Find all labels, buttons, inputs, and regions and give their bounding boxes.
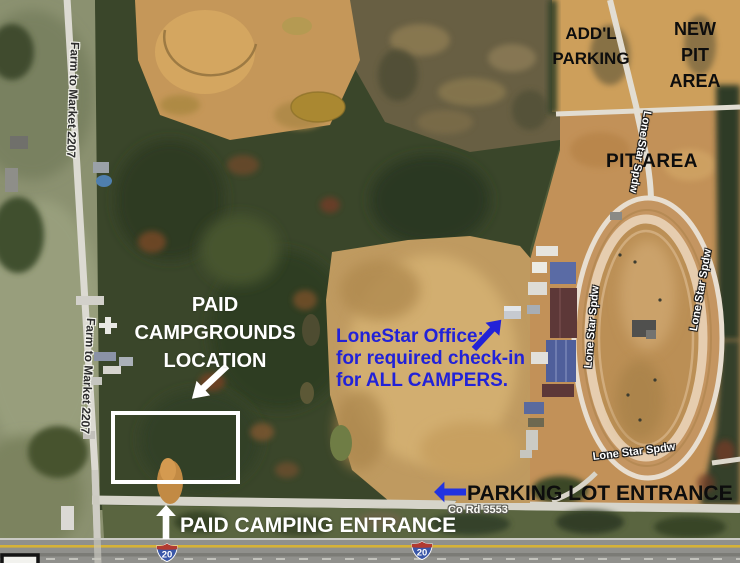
satellite-map: 20 20 ADD'L PARKING NEW PIT AREA PIT ARE… <box>0 0 740 563</box>
partial-shield-box <box>2 555 38 563</box>
paid-campgrounds-label: PAID CAMPGROUNDS LOCATION <box>134 291 295 375</box>
new-pit-area-label: NEW PIT AREA <box>669 16 720 94</box>
parking-lot-entrance-label: PARKING LOT ENTRANCE <box>467 481 733 507</box>
addl-parking-label: ADD'L PARKING <box>552 21 629 71</box>
shield-number: 20 <box>417 548 428 559</box>
lonestar-office-note: LoneStar Office: for required check-in f… <box>336 326 525 392</box>
campgrounds-boundary-rectangle <box>111 411 240 484</box>
pit-area-label: PIT AREA <box>606 150 698 174</box>
shield-number: 20 <box>162 550 173 561</box>
paid-camping-entrance-label: PAID CAMPING ENTRANCE <box>180 513 456 539</box>
lonestar-office-building <box>504 306 521 319</box>
